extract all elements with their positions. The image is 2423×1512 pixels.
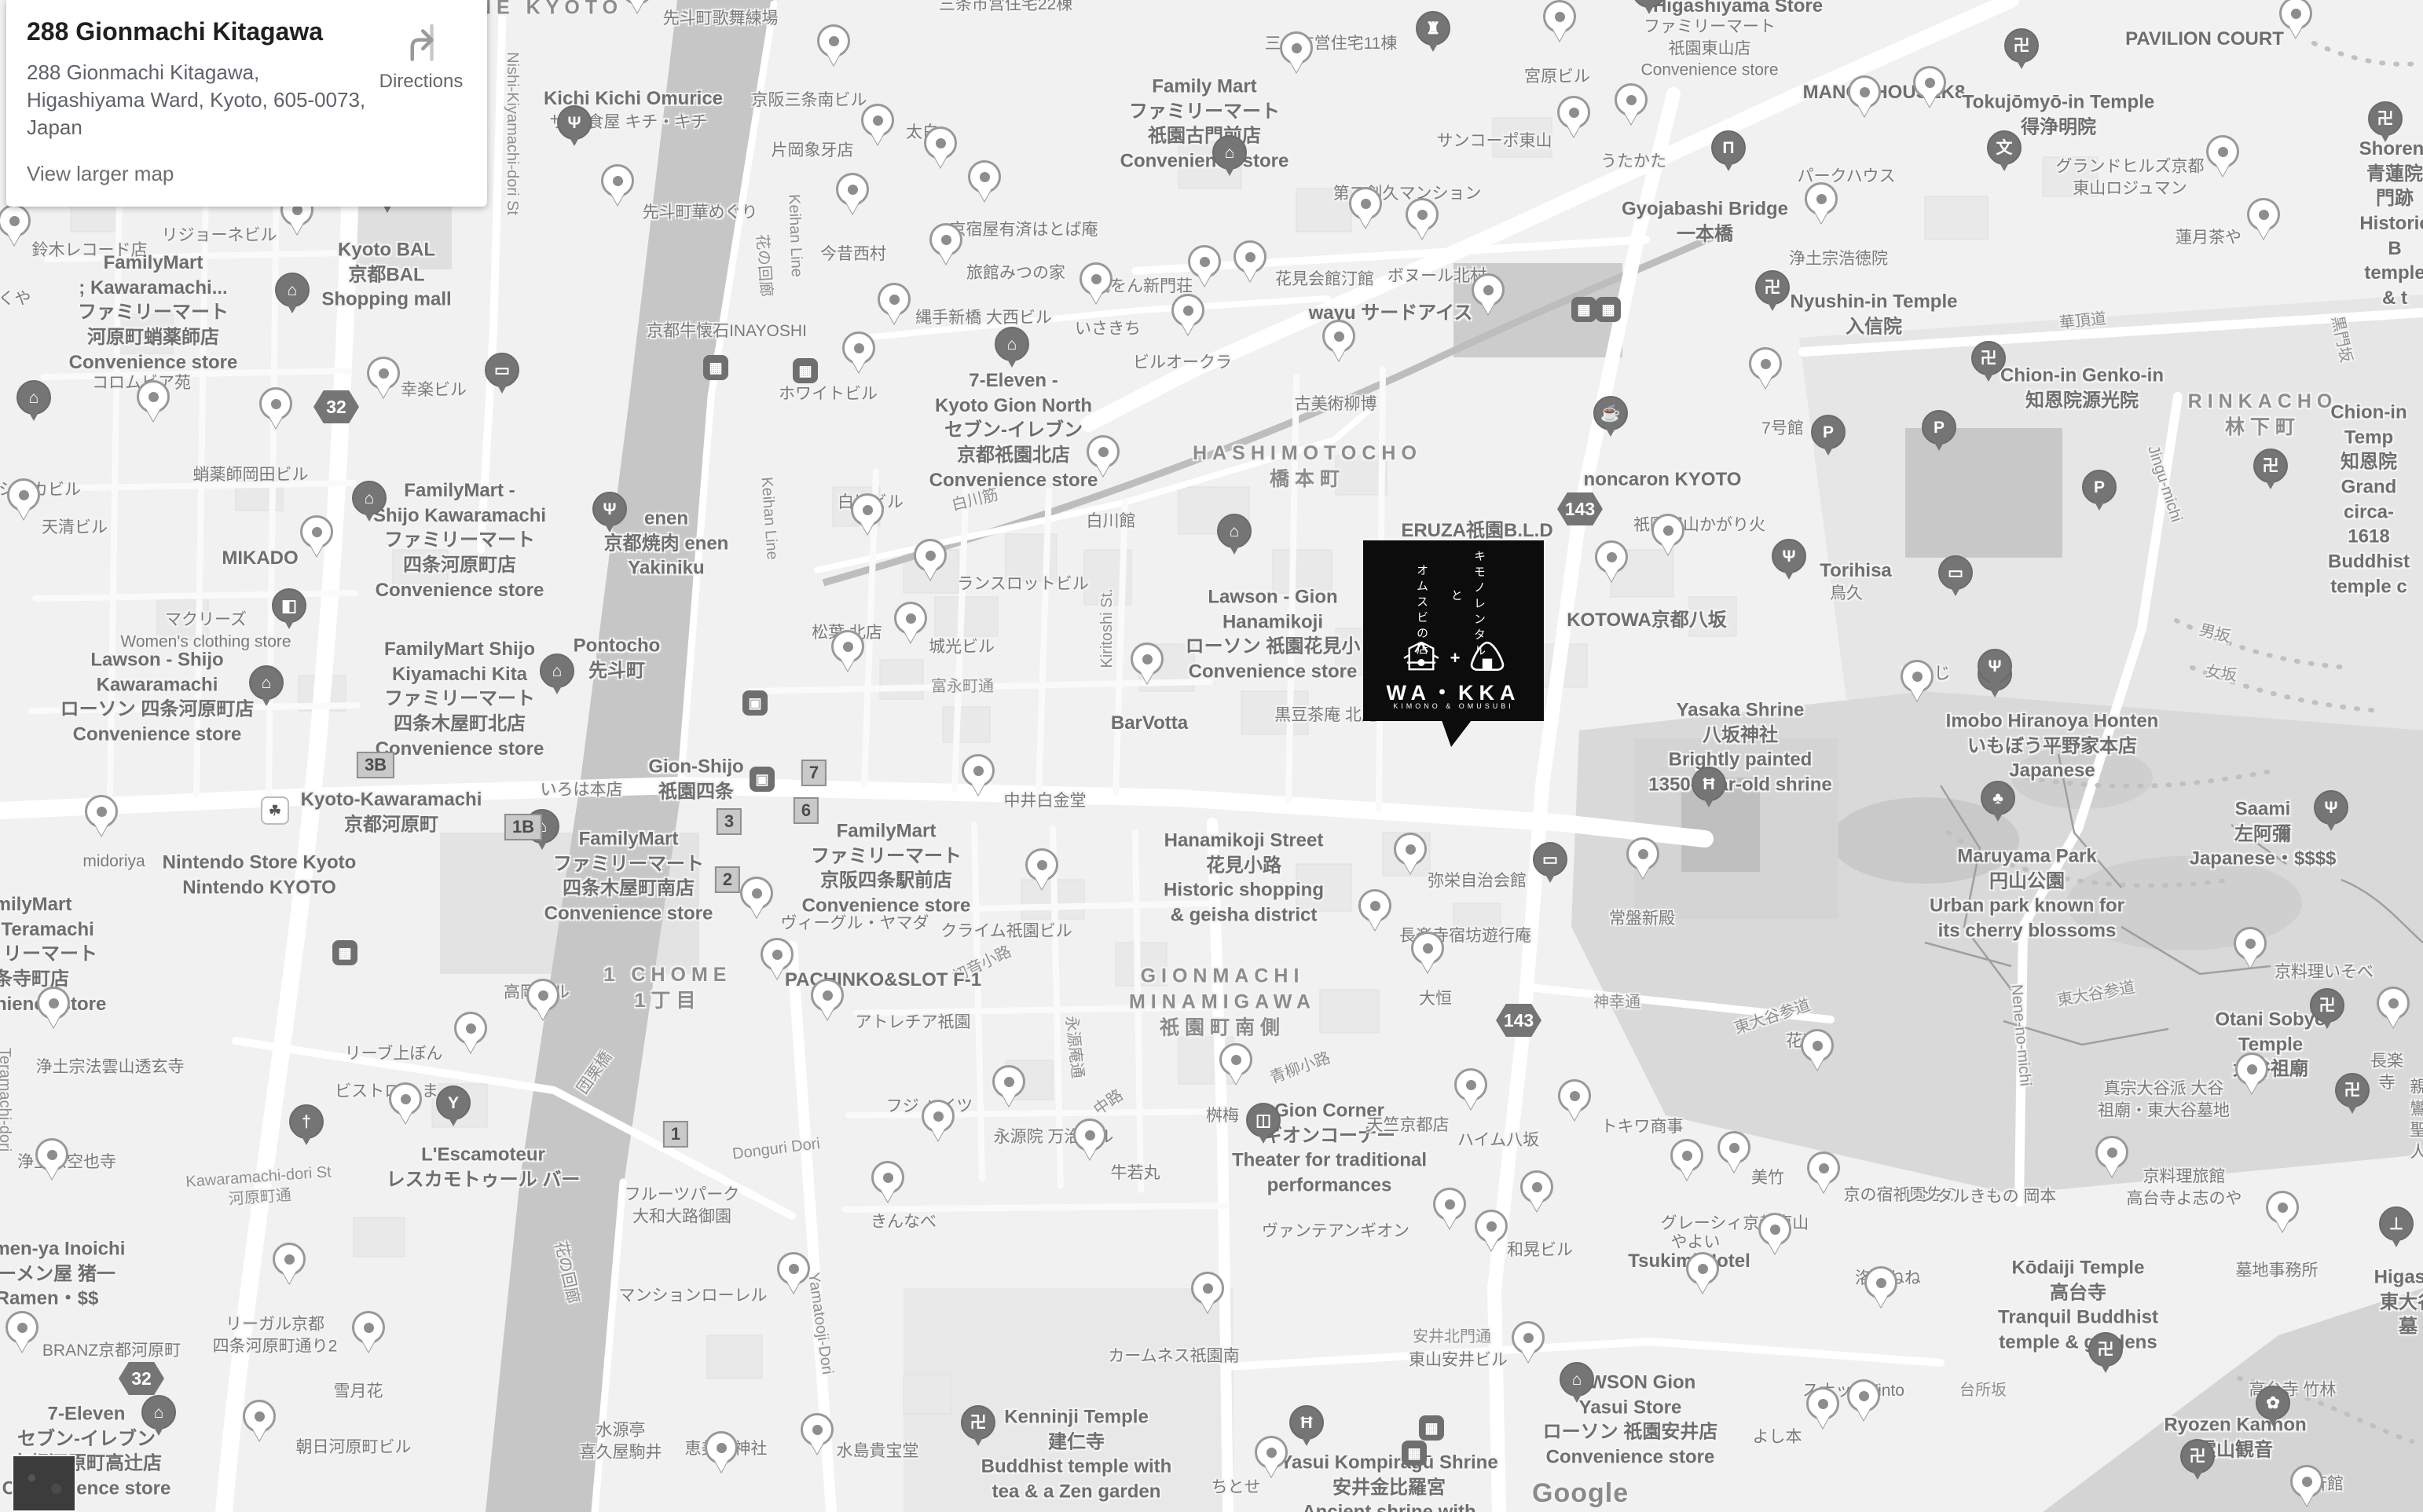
place-pin[interactable] <box>600 164 635 208</box>
place-pin[interactable] <box>2246 198 2281 242</box>
bus-icon[interactable]: ▦ <box>332 940 357 965</box>
place-pin[interactable] <box>242 1400 277 1444</box>
bed-pin[interactable]: ▭ <box>485 353 519 397</box>
place-pin[interactable] <box>1542 0 1577 44</box>
place-pin[interactable] <box>704 1431 739 1475</box>
place-pin[interactable] <box>2205 135 2240 179</box>
place-pin[interactable] <box>6 478 41 522</box>
place-pin[interactable] <box>1912 66 1947 110</box>
station-exit-badge: 1B <box>504 814 542 840</box>
place-pin[interactable] <box>1187 245 1222 289</box>
place-pin[interactable] <box>1556 96 1591 140</box>
food-pin[interactable]: Ψ <box>592 492 627 536</box>
place-pin[interactable] <box>1864 1266 1898 1310</box>
place-pin[interactable] <box>1254 1436 1288 1480</box>
place-pin[interactable] <box>992 1065 1026 1109</box>
place-pin[interactable] <box>1758 1213 1792 1257</box>
place-pin[interactable] <box>2289 1465 2324 1509</box>
place-pin[interactable] <box>2265 1191 2300 1235</box>
store-pin[interactable]: ⌂ <box>275 273 310 317</box>
station-exit-badge: 2 <box>715 866 740 893</box>
place-pin[interactable] <box>2234 1053 2269 1096</box>
place-pin[interactable] <box>1321 320 1356 364</box>
plus-sign: + <box>1450 648 1461 668</box>
place-pin[interactable] <box>830 630 865 674</box>
place-pin[interactable] <box>835 173 870 217</box>
place-pin[interactable] <box>366 357 401 401</box>
place-title: 288 Gionmachi Kitagawa <box>27 17 365 46</box>
place-pin[interactable] <box>1594 540 1629 584</box>
store-pin[interactable]: ⌂ <box>352 481 387 525</box>
place-pin[interactable] <box>1800 1029 1835 1073</box>
place-pin[interactable] <box>1471 273 1505 317</box>
place-pin[interactable] <box>35 1138 69 1182</box>
station-exit-badge: 3B <box>357 752 394 778</box>
bag-pin[interactable]: ◧ <box>272 588 306 632</box>
store-pin[interactable]: ⌂ <box>249 665 284 709</box>
place-pin[interactable] <box>2278 0 2313 41</box>
place-pin[interactable] <box>299 515 334 559</box>
place-pin[interactable] <box>136 380 170 424</box>
store-pin[interactable]: ⌂ <box>141 1395 176 1439</box>
place-pin[interactable] <box>1358 889 1392 933</box>
store-pin[interactable]: ⌂ <box>1632 0 1666 17</box>
place-pin[interactable] <box>816 24 851 68</box>
place-pin[interactable] <box>1847 75 1882 119</box>
place-pin[interactable] <box>1900 660 1934 704</box>
shrine-pin[interactable]: Ħ <box>1692 767 1726 811</box>
place-pin[interactable] <box>526 979 560 1023</box>
bed-pin[interactable]: ▭ <box>1533 842 1567 886</box>
place-pin[interactable] <box>258 387 293 431</box>
place-pin[interactable] <box>1410 932 1445 976</box>
bus-icon[interactable]: ▦ <box>1419 1415 1444 1441</box>
place-pin[interactable] <box>913 539 948 583</box>
place-pin[interactable] <box>1511 1321 1545 1365</box>
place-address: 288 Gionmachi Kitagawa, Higashiyama Ward… <box>27 59 365 141</box>
castle-pin[interactable]: ♜ <box>1416 11 1450 55</box>
train-icon[interactable]: ▣ <box>742 690 768 716</box>
store-pin[interactable]: ⌂ <box>540 653 574 697</box>
theater-pin[interactable]: ◫ <box>1246 1103 1281 1147</box>
directions-label: Directions <box>379 71 464 92</box>
food-pin[interactable]: Ψ <box>1978 649 2012 693</box>
bus-icon[interactable]: ▦ <box>793 358 818 383</box>
temple-pin[interactable]: 卍 <box>2253 448 2288 492</box>
school-pin[interactable]: 文 <box>1987 130 2022 174</box>
place-pin[interactable] <box>1804 182 1838 226</box>
food-pin[interactable]: Ψ <box>557 105 592 149</box>
place-pin[interactable] <box>1079 262 1113 306</box>
place-pin[interactable] <box>2376 987 2410 1031</box>
place-pin[interactable] <box>850 493 885 537</box>
station-exit-badge: 3 <box>717 808 742 835</box>
store-pin[interactable]: ⌂ <box>1217 514 1252 558</box>
logo-marker-tail <box>1442 720 1472 747</box>
place-pin[interactable] <box>1025 848 1059 892</box>
place-pin[interactable] <box>967 160 1002 204</box>
place-pin[interactable] <box>0 204 31 248</box>
station-exit-badge: 7 <box>801 760 827 786</box>
directions-icon <box>374 20 468 63</box>
place-pin[interactable] <box>1279 31 1314 75</box>
place-pin[interactable] <box>1846 1379 1881 1423</box>
place-pin[interactable] <box>1453 1068 1488 1112</box>
place-pin[interactable] <box>1348 187 1383 231</box>
temple-pin[interactable]: 卍 <box>2180 1439 2215 1483</box>
temple-pin[interactable]: 卍 <box>1755 270 1790 314</box>
logo-text-connector: と <box>1448 589 1464 605</box>
place-pin[interactable] <box>1626 837 1660 881</box>
place-pin[interactable] <box>739 877 774 921</box>
food-pin[interactable]: Ψ <box>1772 539 1806 583</box>
place-pin[interactable] <box>1651 514 1685 558</box>
place-pin[interactable] <box>1072 1118 1107 1162</box>
place-pin[interactable] <box>800 1413 834 1457</box>
place-pin[interactable] <box>1670 1139 1704 1183</box>
bus-icon[interactable]: ▦ <box>703 355 728 380</box>
place-pin[interactable] <box>1190 1272 1225 1316</box>
bridge-pin[interactable]: Π <box>1711 130 1746 174</box>
place-pin[interactable] <box>810 979 845 1023</box>
directions-button[interactable]: Directions <box>374 17 468 186</box>
bus-icon[interactable]: ▦ <box>1571 297 1596 322</box>
place-pin[interactable] <box>1614 83 1648 127</box>
place-pin[interactable] <box>1233 240 1267 284</box>
place-pin[interactable] <box>921 1100 955 1144</box>
view-larger-map-link[interactable]: View larger map <box>27 162 174 185</box>
temple-pin[interactable]: 卍 <box>2004 28 2039 72</box>
place-pin[interactable] <box>841 331 876 375</box>
temple-pin[interactable]: 卍 <box>2310 988 2344 1032</box>
place-pin[interactable] <box>453 1012 488 1056</box>
onigiri-icon <box>1469 639 1505 676</box>
place-pin[interactable] <box>388 1082 423 1126</box>
cocktail-pin[interactable]: Y <box>436 1085 471 1129</box>
map-canvas[interactable]: NE KYOTO三条市営住宅22棟Higashiyama Storeファミリーマ… <box>0 0 2423 1512</box>
place-pin[interactable] <box>760 938 794 982</box>
leaf-icon[interactable]: ☘ <box>261 796 289 825</box>
satellite-thumbnail[interactable] <box>12 1455 76 1512</box>
temple-pin[interactable]: 卍 <box>2088 1332 2123 1376</box>
place-pin[interactable] <box>1219 1043 1253 1087</box>
place-pin[interactable] <box>1432 1188 1467 1232</box>
place-pin[interactable] <box>36 987 71 1031</box>
place-pin[interactable] <box>776 1252 811 1296</box>
temple-pin[interactable]: 卍 <box>2368 101 2403 145</box>
place-pin[interactable] <box>84 795 119 839</box>
place-pin[interactable] <box>1806 1151 1841 1195</box>
place-pin[interactable] <box>1805 1387 1840 1431</box>
store-pin[interactable]: ⌂ <box>1212 135 1247 179</box>
google-logo[interactable]: Google <box>1532 1478 1629 1509</box>
place-pin[interactable] <box>272 1243 306 1287</box>
store-pin[interactable]: ⌂ <box>1560 1362 1594 1406</box>
place-pin[interactable] <box>1717 1131 1751 1175</box>
map-info-card: 288 Gionmachi Kitagawa 288 Gionmachi Kit… <box>6 0 487 207</box>
station-exit-badge: 6 <box>794 797 819 824</box>
logo-tagline: KIMONO & OMUSUBI <box>1363 702 1544 710</box>
cafe-pin[interactable]: ☕ <box>1593 396 1628 440</box>
bus-icon[interactable]: ▦ <box>1402 1441 1427 1466</box>
place-pin[interactable] <box>351 1311 386 1355</box>
place-pin[interactable] <box>620 0 654 16</box>
station-exit-badge: 1 <box>663 1121 688 1148</box>
parking-pin[interactable]: P <box>1811 415 1846 459</box>
place-pin[interactable] <box>2095 1136 2129 1180</box>
train-icon[interactable]: ▣ <box>750 767 775 792</box>
place-pin[interactable] <box>1685 1252 1720 1296</box>
place-pin[interactable] <box>1519 1170 1554 1214</box>
kimono-icon <box>1402 639 1441 676</box>
place-pin[interactable] <box>923 126 958 170</box>
parking-pin[interactable]: P <box>2082 470 2117 514</box>
place-pin[interactable] <box>871 1161 905 1205</box>
place-pin[interactable] <box>929 223 963 267</box>
place-pin[interactable] <box>961 754 995 798</box>
food-pin[interactable]: Ψ <box>2314 790 2348 834</box>
store-pin[interactable]: ⌂ <box>16 380 51 424</box>
place-pin[interactable] <box>2233 927 2267 971</box>
place-pin[interactable] <box>893 602 928 646</box>
place-pin[interactable] <box>1086 435 1120 479</box>
place-pin[interactable] <box>1557 1079 1592 1123</box>
temple-pin[interactable]: 卍 <box>2335 1073 2370 1117</box>
church-pin[interactable]: † <box>289 1104 324 1148</box>
bed-pin[interactable]: ▭ <box>1938 555 1973 599</box>
place-pin[interactable] <box>877 283 911 327</box>
temple-pin[interactable]: 卍 <box>1971 341 2006 385</box>
place-pin[interactable] <box>1748 347 1783 391</box>
parking-pin[interactable]: P <box>1922 410 1956 454</box>
store-pin[interactable]: ⌂ <box>995 327 1029 371</box>
place-pin[interactable] <box>5 1311 39 1355</box>
temple-pin[interactable]: 卍 <box>961 1405 995 1449</box>
bus-icon[interactable]: ▦ <box>1596 297 1621 322</box>
place-pin[interactable] <box>1474 1210 1508 1254</box>
park-pin[interactable]: ♣ <box>1981 781 2015 825</box>
place-pin[interactable] <box>860 104 895 148</box>
place-pin[interactable] <box>1130 643 1164 686</box>
place-pin[interactable] <box>1405 198 1439 242</box>
shrine-pin[interactable]: Ħ <box>1289 1405 1324 1449</box>
place-pin[interactable] <box>1393 833 1428 877</box>
flower-pin[interactable]: ✿ <box>2256 1386 2290 1430</box>
wakka-logo-marker[interactable]: キモノレンタル と オムスビの店 + WA・KKA KIMONO & OMUSU… <box>1363 540 1544 721</box>
grave-pin[interactable]: ⊥ <box>2379 1206 2414 1250</box>
place-pin[interactable] <box>1171 294 1205 338</box>
